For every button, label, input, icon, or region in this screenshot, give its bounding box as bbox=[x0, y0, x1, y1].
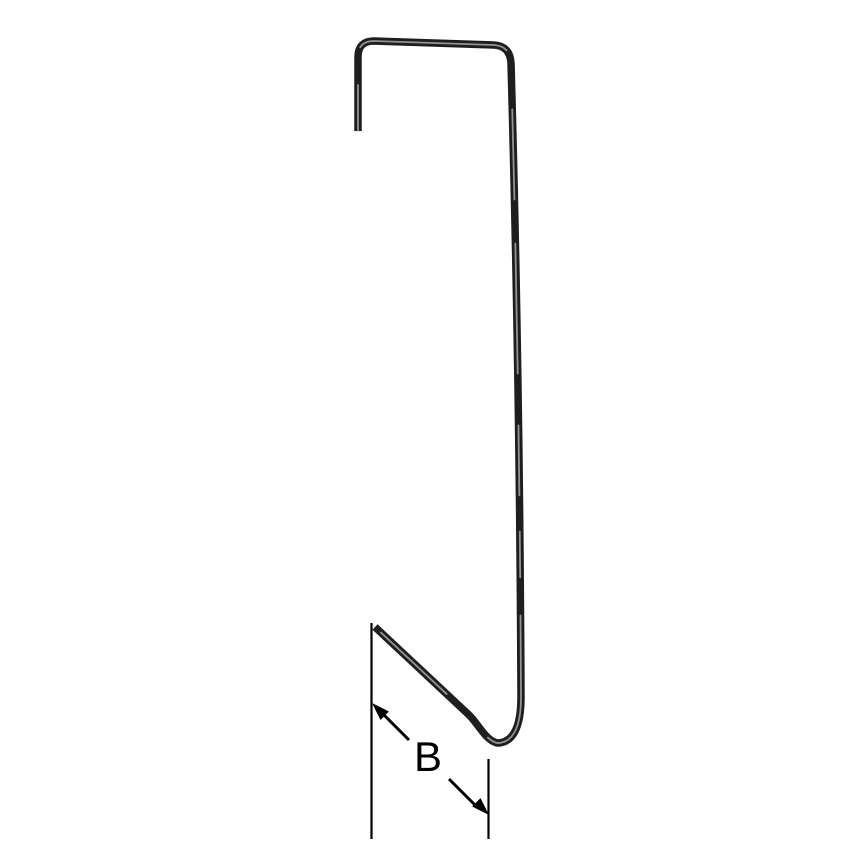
diagram-canvas: B bbox=[0, 0, 850, 850]
dimension-arrowhead-lower bbox=[472, 798, 489, 815]
dimension-label: B bbox=[414, 733, 442, 780]
dimension-arrow-shaft-lower bbox=[449, 779, 477, 807]
wire-rod bbox=[358, 41, 521, 743]
dimension-arrow-shaft-upper bbox=[383, 714, 409, 740]
dimension-diagram: B bbox=[0, 0, 850, 850]
